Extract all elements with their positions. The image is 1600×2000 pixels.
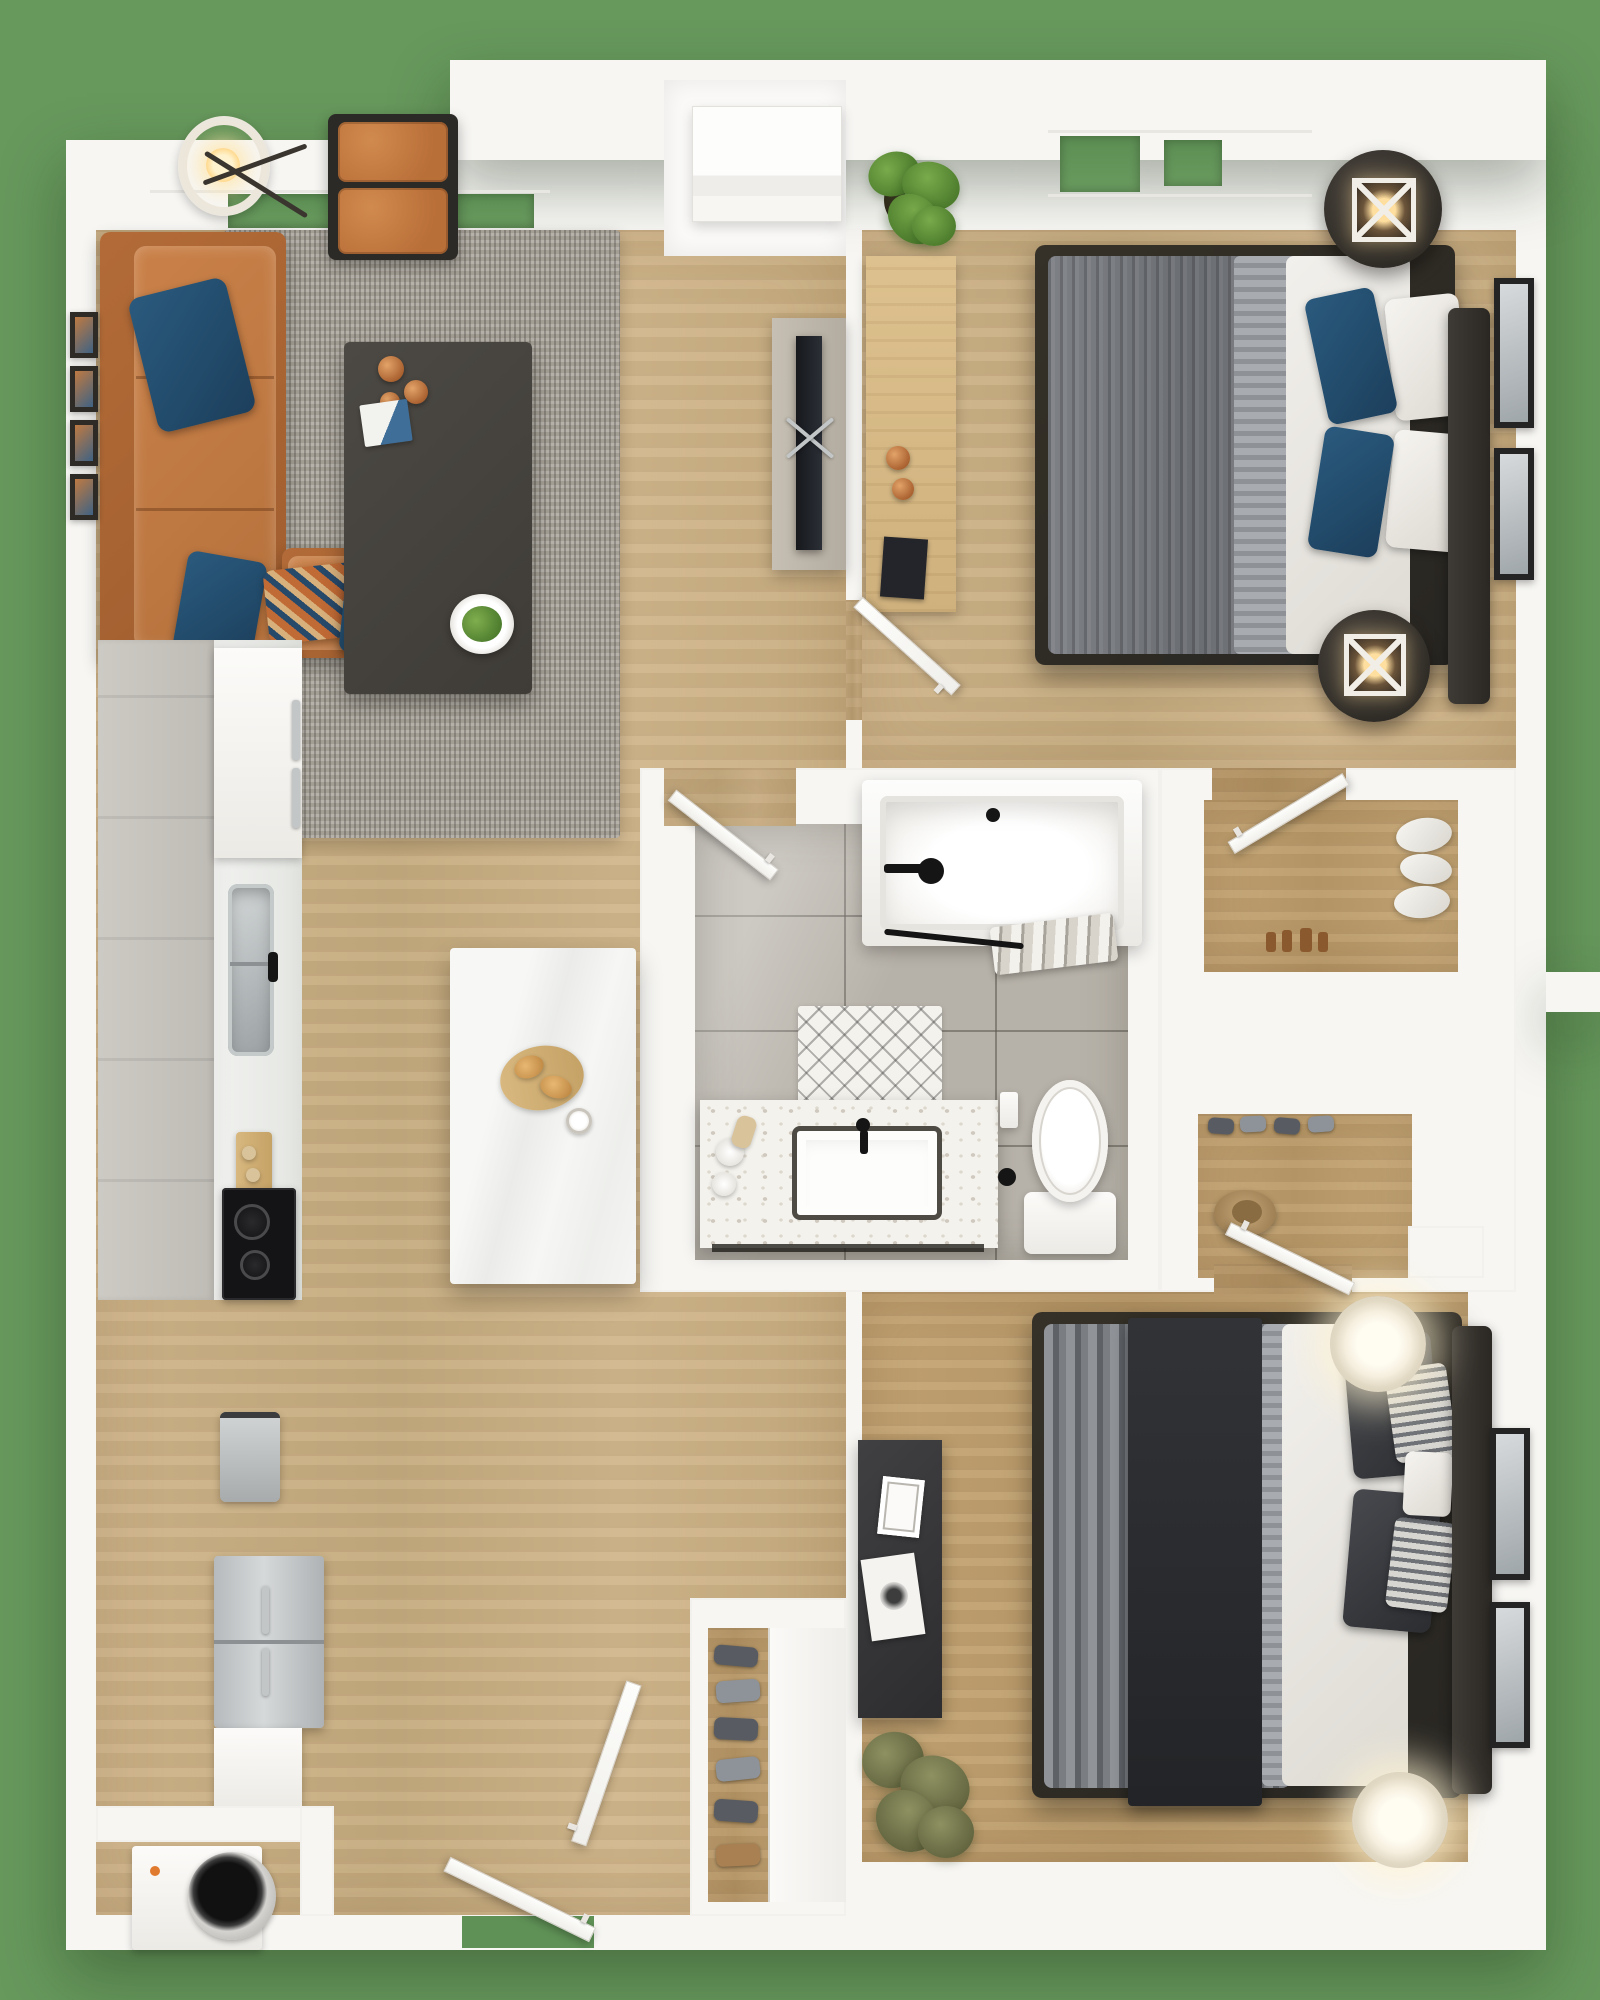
cooktop-burner-1 — [234, 1204, 270, 1240]
bed1-headboard — [1448, 308, 1490, 704]
bed2-dark-throw — [1128, 1318, 1262, 1806]
bedroom2-wall-frame-2 — [1490, 1602, 1530, 1748]
bedroom1-window-sill-bottom — [1048, 194, 1312, 197]
coffee-table-plate-greens — [462, 606, 502, 642]
bedroom1-window-glass-1 — [1060, 136, 1140, 192]
kitchen-knob-1 — [242, 1146, 256, 1160]
shoe-pair-2 — [715, 1678, 760, 1703]
vanity-faucet-stem — [860, 1130, 868, 1154]
linen-shoe-2 — [1240, 1115, 1267, 1132]
shoe-pair-1 — [713, 1644, 759, 1668]
sofa-cushion-seam-2 — [136, 508, 274, 511]
bed2-pillow-striped-2 — [1385, 1517, 1458, 1614]
fridge-door-gap — [214, 1640, 324, 1644]
kitchen-toaster — [220, 1412, 280, 1502]
toilet-paper-holder — [1000, 1092, 1018, 1128]
floor-drain — [998, 1168, 1016, 1186]
desk-notebook — [880, 537, 928, 600]
nightstand-bottom-cage-lamp — [1344, 634, 1406, 696]
hall-closet-dresser — [692, 106, 842, 222]
shoe-pair-5 — [713, 1798, 758, 1823]
bedroom2-poster-dandelion — [880, 1582, 908, 1610]
coffee-table-bowl-1 — [378, 356, 404, 382]
vanity-front-edge — [712, 1244, 984, 1252]
cooktop-burner-2 — [240, 1250, 270, 1280]
desk-candle-2 — [892, 478, 914, 500]
bed2-round-lamp-top — [1330, 1296, 1426, 1392]
living-window-glass-2 — [452, 194, 534, 228]
shoe-pair-3 — [713, 1717, 758, 1741]
bedroom1-door-threshold — [846, 600, 862, 720]
bedroom1-window-glass-2 — [1164, 140, 1222, 186]
wall-frame-1 — [70, 312, 98, 358]
laundry-nook-wall-top — [96, 1806, 334, 1842]
vanity-soap-dish-2 — [712, 1172, 736, 1196]
laundry-nook-wall-right — [300, 1806, 334, 1916]
bedroom1-plant-leaf-4 — [912, 206, 956, 246]
shoe-closet-side-panel — [768, 1628, 846, 1902]
toilet-bowl — [1032, 1080, 1108, 1202]
kitchen-cabinet-handle-1 — [292, 700, 300, 760]
bedroom1-wall-frame-1 — [1494, 278, 1534, 428]
scene: { "meta": { "label": "3D rendered top-do… — [0, 0, 1600, 2000]
bathtub-overflow-drain — [986, 808, 1000, 822]
kitchen-tall-cabinet — [214, 648, 302, 858]
bedroom2-wall-frame-1 — [1490, 1428, 1530, 1580]
bedroom1-window-sill-top — [1048, 130, 1312, 133]
bed2-round-lamp-bottom — [1352, 1772, 1448, 1868]
linen-shoe-4 — [1307, 1115, 1334, 1133]
slab-top — [450, 60, 1546, 160]
linen-shoe-3 — [1273, 1117, 1300, 1135]
bed2-pillow-white — [1402, 1451, 1453, 1517]
wall-frame-2 — [70, 366, 98, 412]
armchair-seat-cushion — [338, 188, 448, 254]
washer-indicator-light — [150, 1866, 160, 1876]
walkin-bottle-1 — [1266, 932, 1276, 952]
island-cup — [566, 1108, 592, 1134]
wall-frame-4 — [70, 474, 98, 520]
bathtub-inner — [880, 796, 1124, 930]
coffee-table-book — [359, 399, 412, 447]
fridge-handle-2 — [262, 1648, 269, 1696]
armchair-back-cushion — [338, 122, 448, 182]
kitchen-low-cabinet — [214, 1728, 302, 1812]
bedroom2-plant-leaf-4 — [918, 1806, 974, 1858]
desk-candle-1 — [886, 446, 910, 470]
kitchen-faucet — [268, 952, 278, 982]
wall-frame-3 — [70, 420, 98, 466]
linen-shoe-1 — [1207, 1117, 1234, 1135]
kitchen-cabinet-handle-2 — [292, 768, 300, 828]
bed2-headboard — [1452, 1326, 1492, 1794]
walkin-bottle-4 — [1318, 932, 1328, 952]
slab-bump-right — [1546, 972, 1600, 1012]
kitchen-island — [450, 948, 636, 1284]
walkin-bottle-3 — [1300, 928, 1312, 952]
kitchen-knob-2 — [246, 1168, 260, 1182]
shoe-pair-4 — [715, 1756, 761, 1782]
washer-porthole-door — [188, 1852, 276, 1940]
floor-plan — [0, 0, 1600, 2000]
bedroom2-frame-small — [877, 1476, 925, 1538]
linen-closet-step — [1408, 1226, 1484, 1278]
nightstand-top-cage-lamp — [1352, 178, 1416, 242]
shoe-pair-6 — [715, 1843, 760, 1867]
kitchen-sink-divider — [230, 962, 272, 966]
fridge-handle-1 — [262, 1586, 269, 1634]
coffee-table-bowl-2 — [404, 380, 428, 404]
bathtub-faucet-head — [918, 858, 944, 884]
bath-mat — [798, 1006, 942, 1114]
bedroom1-wall-frame-2 — [1494, 448, 1534, 580]
walkin-bottle-2 — [1282, 930, 1292, 952]
kitchen-cabinet-front — [98, 640, 214, 1300]
